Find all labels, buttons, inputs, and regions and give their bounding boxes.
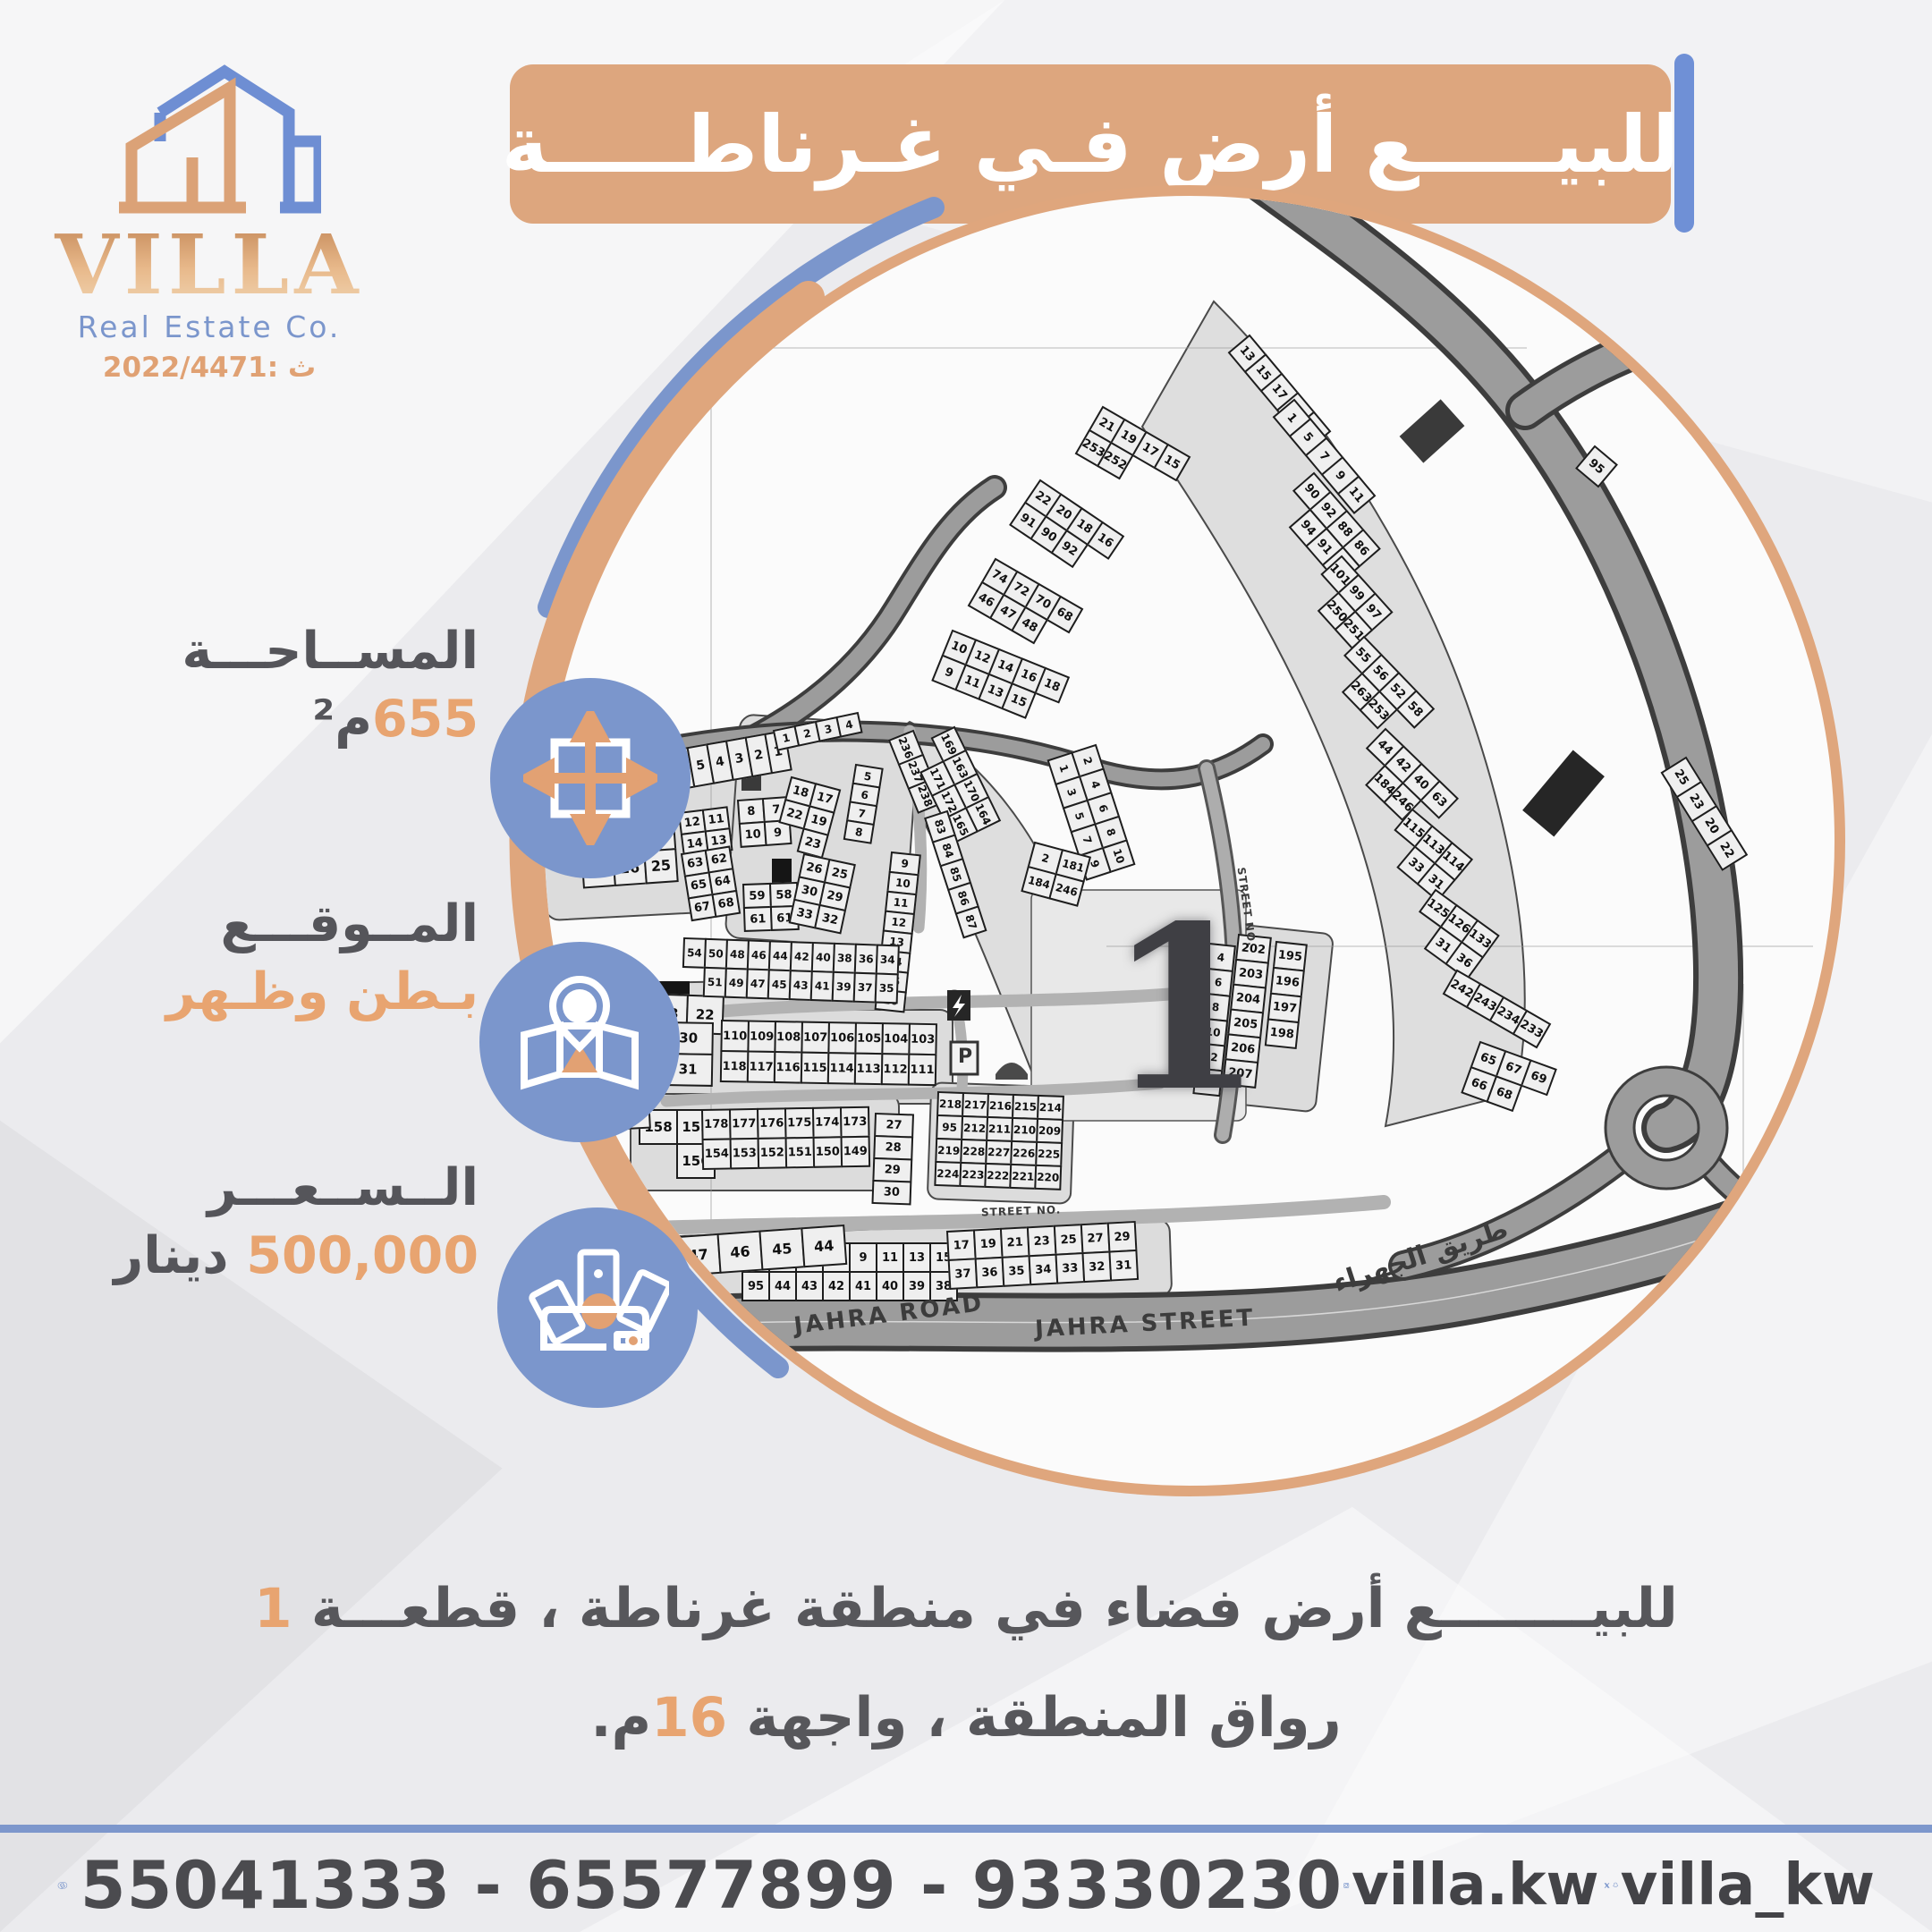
- parcel-cell: 36: [854, 944, 878, 975]
- info-row-location: المــوقـــع بـطن وظـهر: [27, 894, 479, 1021]
- parcel-cell: 43: [795, 1271, 824, 1301]
- parcel-cell: 117: [747, 1051, 776, 1084]
- parcel-grid: 6543218297877282782262512111413636265646…: [534, 185, 1845, 1496]
- parcel-cell: 61: [743, 906, 773, 932]
- parcel-strip: 1719212325272937363534333231: [947, 1222, 1138, 1289]
- parcel-cell: 149: [841, 1136, 871, 1168]
- parcel-cell: 19: [973, 1228, 1004, 1260]
- parcel-cell: 46: [716, 1231, 763, 1274]
- location-pin-icon: [479, 942, 680, 1142]
- parcel-cell: 37: [853, 972, 877, 1004]
- parcel-cell: 95: [1575, 445, 1618, 488]
- area-value: 655م²: [27, 690, 479, 749]
- parcel-cell: 40: [811, 942, 835, 973]
- footer-bar: 55041333 - 65577899 - 93330230 villa.kw …: [0, 1841, 1932, 1930]
- parcel-cell: 219: [935, 1138, 962, 1164]
- parcel-cell: 37: [948, 1258, 979, 1290]
- parcel-cell: 29: [1107, 1221, 1138, 1253]
- parcel-cell: 45: [758, 1227, 805, 1270]
- parcel-cell: 50: [704, 938, 728, 970]
- parcel-cell: 176: [757, 1107, 787, 1140]
- parcel-cell: 21: [1000, 1226, 1030, 1258]
- parcel-cell: 118: [720, 1050, 750, 1083]
- parcel-cell: 216: [987, 1093, 1014, 1119]
- parcel-cell: 54: [682, 937, 707, 969]
- parcel-cell: 48: [725, 939, 750, 970]
- parcel-strip: 242243234233: [1444, 970, 1550, 1047]
- parcel-cell: 221: [1009, 1164, 1037, 1190]
- whatsapp-icon[interactable]: [60, 1844, 68, 1927]
- parcel-cell: 34: [1029, 1254, 1059, 1286]
- parcel-cell: 68: [711, 890, 741, 918]
- map-circle: 6543218297877282782262512111413636265646…: [534, 185, 1845, 1496]
- parcel-cell: 107: [801, 1021, 830, 1055]
- parcel-cell: 33: [1055, 1252, 1085, 1284]
- parcel-cell: 34: [876, 945, 900, 976]
- parcel-cell: 41: [810, 970, 835, 1002]
- parcel-strip: 27282930: [873, 1114, 913, 1204]
- parcel-cell: 151: [785, 1137, 816, 1169]
- description-line1: للبيــــــــع أرض فضاء في منطقة غرناطة ،…: [134, 1555, 1798, 1664]
- parcel-cell: 110: [720, 1020, 750, 1053]
- info-row-area: المســاحـــة 655م²: [27, 622, 479, 749]
- parcel-strip: 74727068464748: [969, 559, 1082, 656]
- building-logo-icon: [97, 32, 321, 220]
- parcel-cell: 51: [703, 967, 727, 998]
- parcel-cell: 225: [1035, 1141, 1063, 1167]
- parcel-cell: 104: [881, 1022, 911, 1055]
- parcel-strip: 1817221923: [774, 777, 840, 858]
- parcel-cell: 39: [832, 971, 856, 1003]
- parcel-cell: 40: [876, 1271, 904, 1301]
- parcel-strip: 1019997250251: [1301, 556, 1392, 648]
- parcel-strip: 54504846444240383634514947454341393735: [682, 938, 899, 1003]
- parcel-cell: 212: [961, 1115, 988, 1141]
- parcel-cell: 116: [774, 1051, 803, 1084]
- parcel-cell: 228: [960, 1139, 987, 1165]
- parcel-cell: 111: [908, 1054, 937, 1087]
- location-value: بـطن وظـهر: [27, 962, 479, 1021]
- parcel-cell: 174: [812, 1106, 843, 1139]
- parcel-cell: 173: [840, 1106, 870, 1139]
- phone-numbers[interactable]: 55041333 - 65577899 - 93330230: [80, 1848, 1343, 1924]
- parcel-cell: 30: [871, 1180, 911, 1206]
- parcel-strip: 2182172162152149521221121020921922822722…: [935, 1092, 1063, 1190]
- parcel-strip: 95: [1576, 446, 1616, 487]
- social-handle[interactable]: villa_kw: [1621, 1852, 1875, 1919]
- license-number: 2022/4471: ث: [52, 352, 367, 384]
- x-twitter-icon[interactable]: [1604, 1852, 1610, 1919]
- parcel-strip: 5678: [844, 765, 883, 843]
- parcel-cell: 36: [975, 1257, 1005, 1289]
- parcel-strip: 1151131143331: [1377, 809, 1471, 901]
- parcel-cell: 32: [1081, 1250, 1112, 1283]
- parcel-cell: 108: [774, 1021, 803, 1054]
- parcel-cell: 35: [1002, 1255, 1032, 1287]
- parcel-cell: 44: [768, 1271, 797, 1301]
- footer-divider: [0, 1825, 1932, 1833]
- parcel-cell: 211: [986, 1116, 1013, 1142]
- parcel-cell: 47: [746, 968, 770, 999]
- money-icon: [497, 1207, 698, 1408]
- parcel-cell: 9: [849, 1242, 877, 1273]
- parcel-cell: 44: [801, 1224, 847, 1267]
- parcel-strip: 25232022: [1662, 758, 1747, 870]
- parcel-strip: 1101091081071061051041031181171161151141…: [721, 1021, 936, 1085]
- parcel-cell: 222: [984, 1163, 1012, 1189]
- brand-subtitle: Real Estate Co.: [52, 309, 367, 344]
- snapchat-icon[interactable]: [1612, 1847, 1619, 1924]
- price-value: 500,000 دينار: [27, 1226, 479, 1285]
- parcel-cell: 103: [908, 1023, 937, 1056]
- parking-letter: P: [953, 1046, 978, 1068]
- parcel-cell: 106: [827, 1021, 857, 1055]
- parcel-cell: 4: [835, 712, 862, 738]
- parcel-cell: 45: [767, 969, 792, 1000]
- parcel-cell: 153: [730, 1138, 760, 1170]
- parcel-cell: 44: [768, 940, 792, 971]
- brand-name: VILLA: [52, 224, 367, 306]
- parcel-cell: 215: [1012, 1094, 1039, 1120]
- parcel-cell: 209: [1036, 1118, 1063, 1144]
- parcel-cell: 224: [934, 1161, 962, 1187]
- parcel-cell: 95: [936, 1114, 963, 1140]
- parcel-cell: 220: [1034, 1165, 1062, 1191]
- parcel-cell: 150: [813, 1136, 843, 1168]
- parcel-cell: 46: [747, 939, 771, 970]
- parcel-cell: 178: [701, 1108, 732, 1140]
- parcel-cell: 115: [801, 1052, 830, 1085]
- parcel-cell: 31: [1108, 1250, 1139, 1282]
- parcel-cell: 109: [747, 1021, 776, 1054]
- parcel-cell: 214: [1037, 1095, 1064, 1121]
- parcel-cell: 154: [702, 1138, 733, 1170]
- parcel-strip: 262530293332: [790, 854, 855, 933]
- price-label: الــســعـــر: [27, 1158, 479, 1217]
- parcel-cell: 41: [849, 1271, 877, 1301]
- parcel-cell: 42: [822, 1271, 851, 1301]
- parcel-cell: 35: [875, 972, 899, 1004]
- info-row-price: الــســعـــر 500,000 دينار: [27, 1158, 479, 1285]
- parcel-cell: 227: [985, 1140, 1013, 1165]
- description-line2: رواق المنطقة ، واجهة 16م.: [134, 1664, 1798, 1773]
- instagram-handle[interactable]: villa.kw: [1352, 1852, 1599, 1919]
- parcel-cell: 17: [946, 1229, 977, 1261]
- parcel-cell: 177: [729, 1108, 759, 1140]
- parcel-cell: 10: [739, 821, 767, 848]
- parcel-cell: 11: [876, 1242, 904, 1273]
- parcel-cell: 105: [854, 1022, 884, 1055]
- area-icon: [490, 678, 691, 878]
- parcel-cell: 8: [843, 819, 875, 844]
- poster-canvas: VILLA Real Estate Co. 2022/4471: ث للبيـ…: [0, 0, 1932, 1932]
- instagram-icon[interactable]: [1343, 1847, 1350, 1924]
- parcel-cell: 223: [959, 1162, 987, 1188]
- parcel-strip: 636265646768: [682, 847, 740, 921]
- parcel-cell: 32: [814, 904, 846, 935]
- parcel-cell: 43: [789, 970, 813, 1001]
- parcel-cell: 27: [1080, 1223, 1111, 1255]
- parcel-cell: 217: [962, 1092, 989, 1118]
- parcel-cell: 25: [1054, 1224, 1084, 1256]
- parcel-cell: 218: [936, 1091, 964, 1117]
- parcel-cell: 113: [854, 1053, 884, 1086]
- parcel-cell: 59: [742, 883, 772, 909]
- parcel-cell: 114: [827, 1052, 857, 1085]
- description-text: للبيــــــــع أرض فضاء في منطقة غرناطة ،…: [134, 1555, 1798, 1773]
- area-label: المســاحـــة: [27, 622, 479, 681]
- parcel-strip: 59586161: [743, 883, 799, 931]
- parcel-cell: 38: [833, 943, 857, 974]
- parcel-strip: 22201816919092: [1010, 480, 1123, 580]
- parcel-strip: 55565258263253: [1326, 637, 1434, 746]
- parcel-strip: 6567696668: [1462, 1042, 1555, 1120]
- parcel-cell: 210: [1011, 1117, 1038, 1143]
- parcel-cell: 226: [1010, 1140, 1038, 1166]
- brand-logo: VILLA Real Estate Co. 2022/4471: ث: [52, 32, 367, 384]
- parcel-cell: 49: [724, 968, 749, 999]
- parcel-cell: 95: [741, 1271, 770, 1301]
- parcel-cell: 175: [784, 1107, 815, 1140]
- parcel-strip: 21191715253252: [1076, 407, 1190, 504]
- page-title: للبيـــــع أرض فـي غـرناطـــــة: [502, 98, 1680, 191]
- parcel-strip: 1251261333136: [1404, 890, 1499, 979]
- parcel-cell: 112: [881, 1053, 911, 1086]
- parcel-strip: 178177176175174173154153152151150149: [702, 1107, 869, 1169]
- location-label: المــوقـــع: [27, 894, 479, 953]
- parcel-cell: 23: [1027, 1225, 1057, 1258]
- parcel-cell: 152: [758, 1137, 788, 1169]
- parcel-cell: 13: [902, 1242, 931, 1273]
- parcel-cell: 42: [790, 941, 814, 972]
- block-number: 1: [1082, 896, 1288, 1122]
- parcel-strip: 1234: [774, 713, 861, 750]
